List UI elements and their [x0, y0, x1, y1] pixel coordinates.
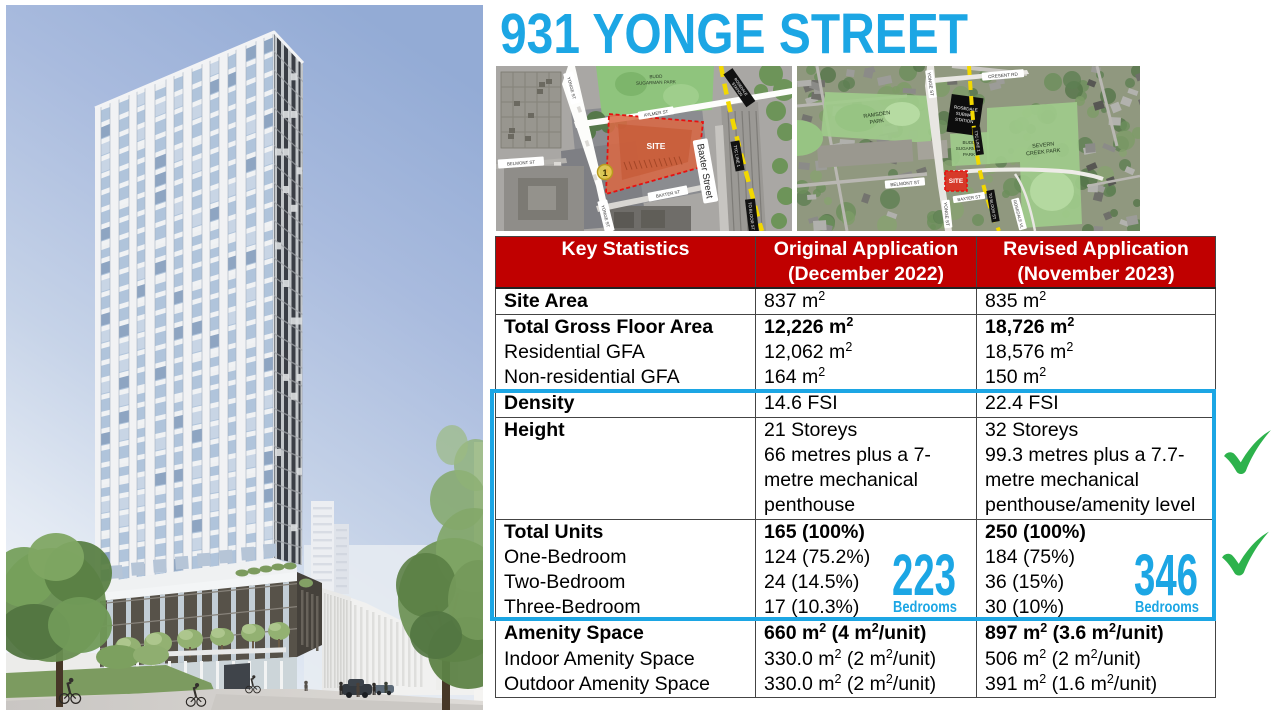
- svg-text:PARK: PARK: [963, 152, 976, 157]
- svg-text:1: 1: [602, 168, 607, 178]
- svg-text:BUDD: BUDD: [649, 74, 663, 79]
- svg-text:SITE: SITE: [647, 141, 666, 151]
- svg-text:SITE: SITE: [949, 178, 964, 185]
